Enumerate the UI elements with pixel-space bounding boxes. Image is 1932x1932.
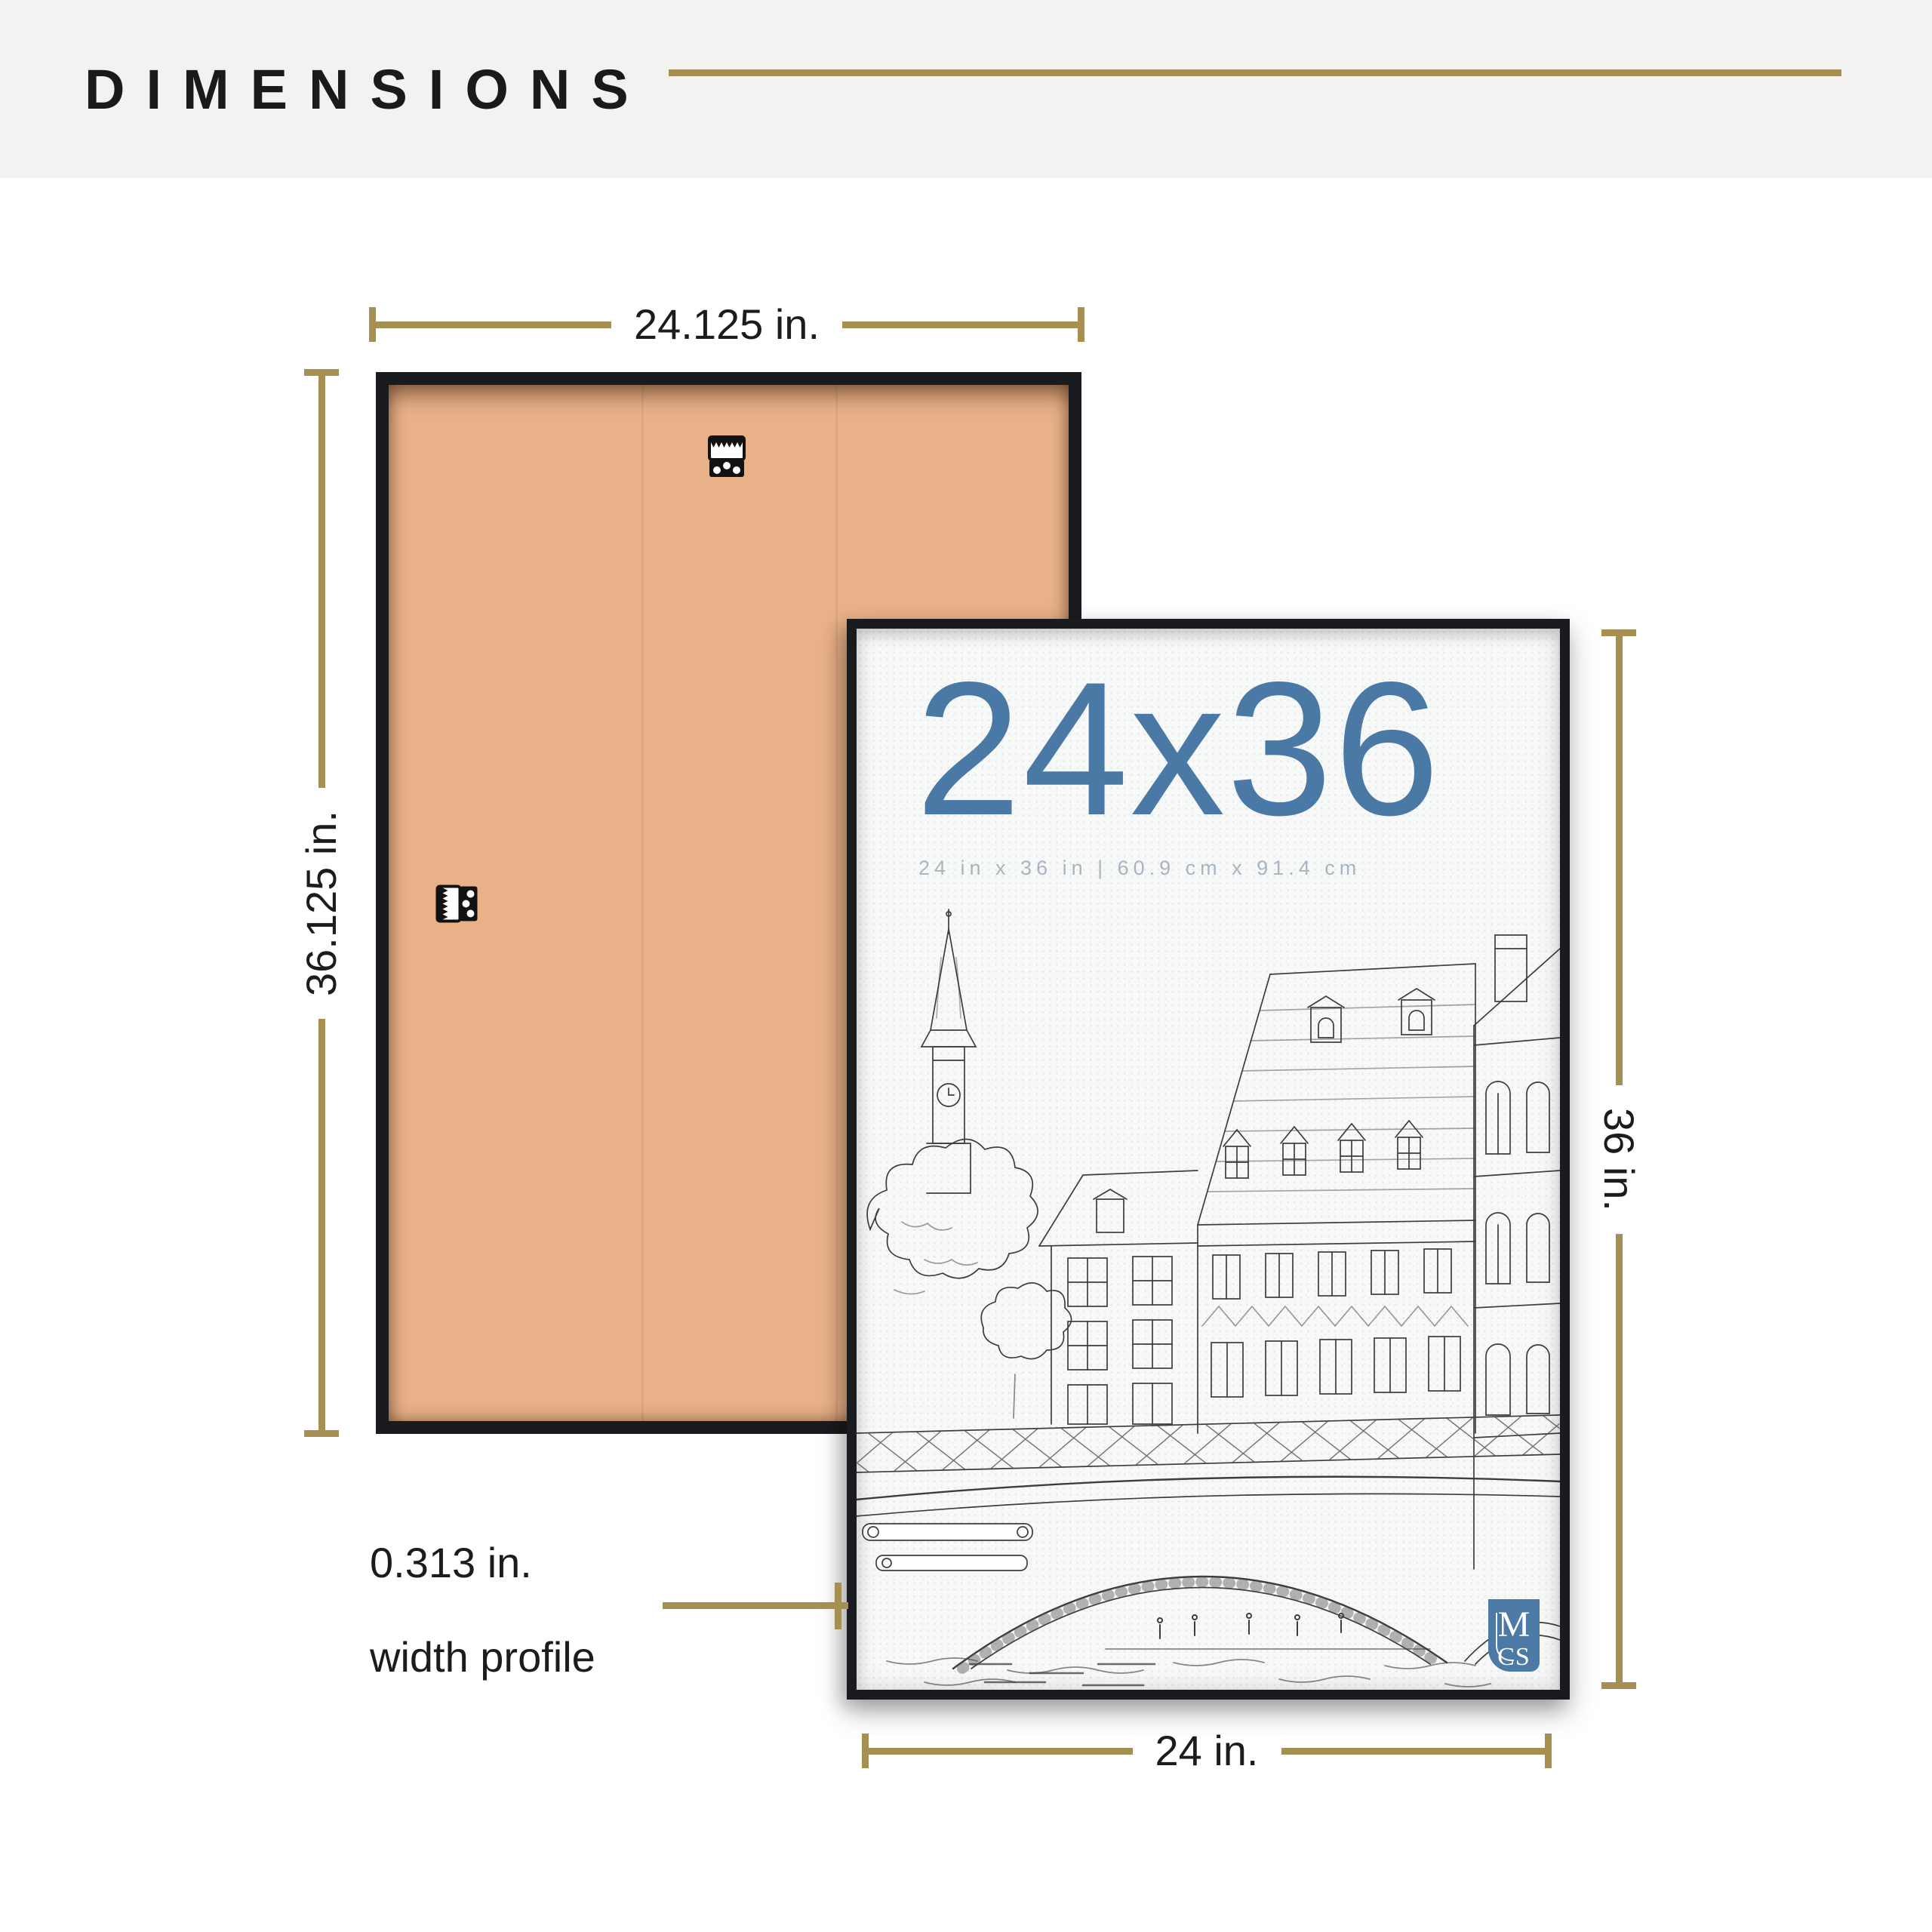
dimension-tick xyxy=(304,369,339,376)
width-profile-caption: width profile xyxy=(370,1633,595,1681)
back-width-dimension: 24.125 in. xyxy=(369,307,1084,342)
poster-size-subtitle: 24 in x 36 in | 60.9 cm x 91.4 cm xyxy=(918,857,1361,880)
dimension-tick xyxy=(304,1430,339,1437)
frame-front-view: 24x36 24 in x 36 in | 60.9 cm x 91.4 cm xyxy=(847,619,1570,1700)
dimension-line xyxy=(869,1748,1133,1755)
width-profile-pointer-tick xyxy=(835,1583,841,1629)
dimension-line xyxy=(318,376,325,788)
back-width-value: 24.125 in. xyxy=(611,303,842,346)
header-band: DIMENSIONS xyxy=(0,0,1932,178)
dimension-line xyxy=(1281,1748,1546,1755)
poster-width-value: 24 in. xyxy=(1133,1730,1281,1772)
dimension-line xyxy=(1616,1234,1623,1683)
poster-size-title: 24x36 xyxy=(915,654,1441,844)
dimension-tick xyxy=(1601,629,1636,636)
width-profile-label: 0.313 in. width profile xyxy=(370,1540,595,1681)
dimension-line xyxy=(376,321,611,328)
back-height-value: 36.125 in. xyxy=(300,788,343,1019)
width-profile-pointer-line xyxy=(663,1602,848,1609)
product-dimensions-infographic: DIMENSIONS 24x36 24 in x 36 in | 60.9 cm… xyxy=(0,0,1932,1932)
logo-letters-cs: CS xyxy=(1488,1644,1540,1670)
city-sketch-artwork xyxy=(857,905,1560,1690)
dimension-line xyxy=(1616,636,1623,1085)
sawtooth-hanger-icon xyxy=(708,435,746,478)
dimension-tick xyxy=(1545,1734,1552,1768)
dimension-tick xyxy=(1601,1682,1636,1689)
dimension-tick xyxy=(1078,307,1084,342)
back-height-dimension: 36.125 in. xyxy=(304,369,339,1437)
poster-height-dimension: 36 in. xyxy=(1601,629,1636,1689)
poster-height-value: 36 in. xyxy=(1598,1085,1640,1234)
header-divider-rule xyxy=(669,69,1841,76)
cardboard-seam xyxy=(641,385,644,1421)
poster-width-dimension: 24 in. xyxy=(862,1734,1552,1768)
width-profile-value: 0.313 in. xyxy=(370,1539,532,1586)
cardboard-seam xyxy=(835,385,838,1421)
dimension-line xyxy=(318,1019,325,1431)
logo-letter-m: M xyxy=(1488,1607,1540,1643)
dimension-tick xyxy=(369,307,376,342)
sawtooth-hanger-icon-side xyxy=(436,885,479,923)
mcs-brand-logo: M CS xyxy=(1488,1599,1540,1672)
dimension-line xyxy=(842,321,1078,328)
dimension-tick xyxy=(862,1734,869,1768)
page-title: DIMENSIONS xyxy=(85,57,650,122)
